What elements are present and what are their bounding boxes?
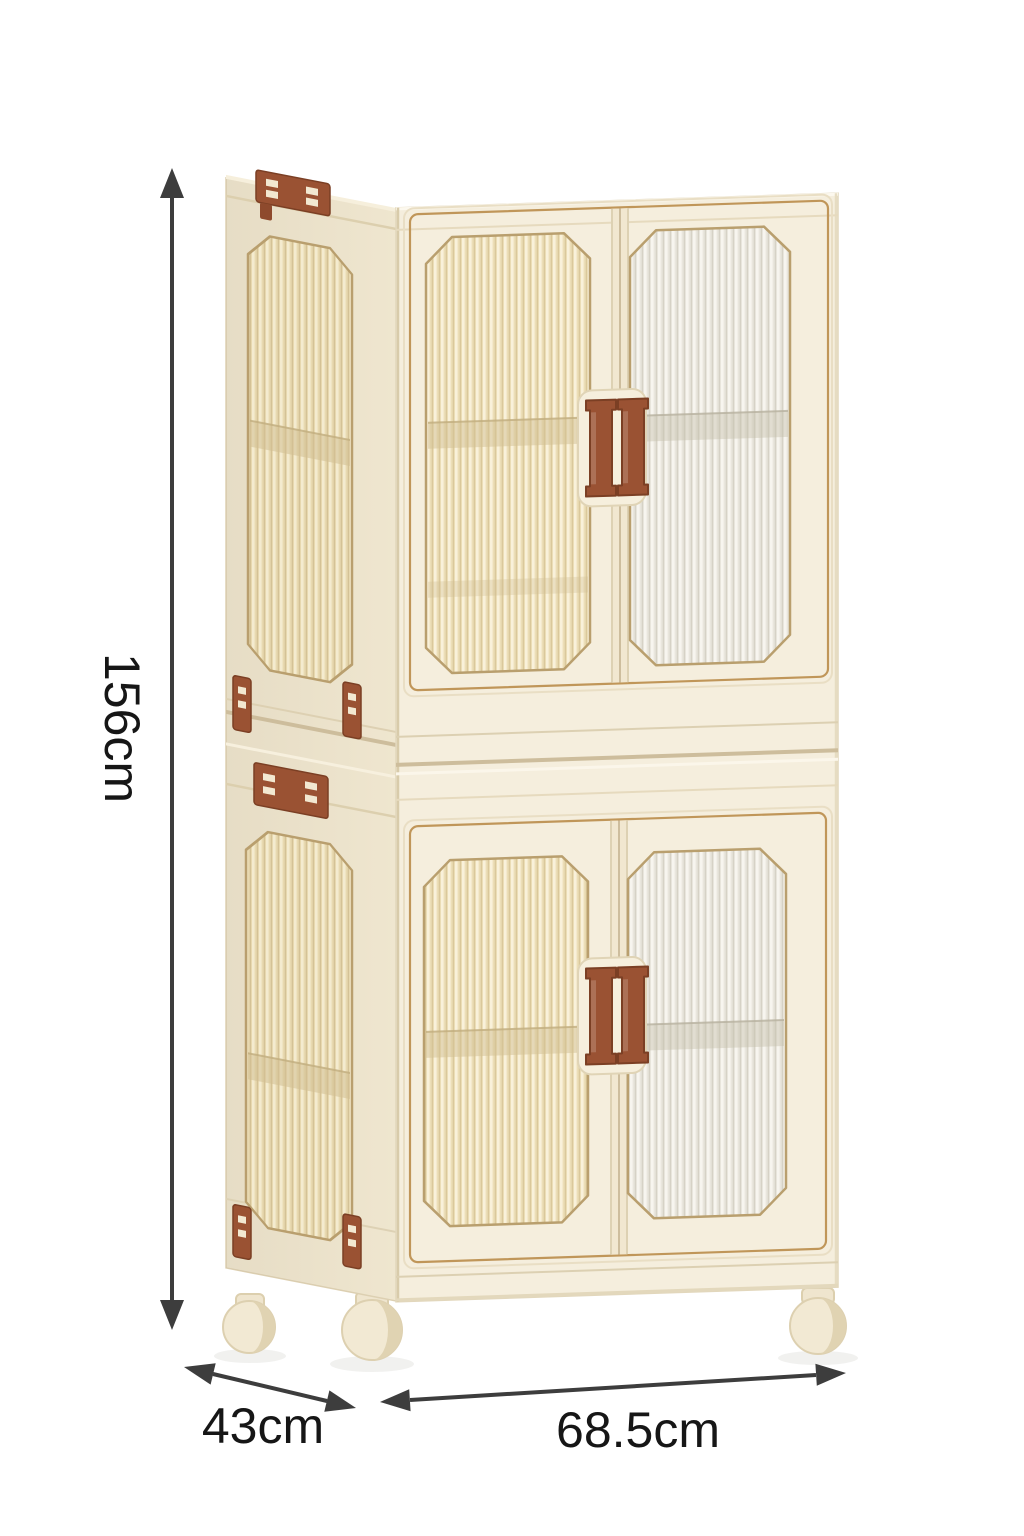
upper-right-door-window [630,226,790,666]
handle-bar-right [618,399,648,496]
arrow-down-icon [160,1300,184,1330]
width-dimension-label: 68.5cm [556,1405,720,1455]
cabinet-front-face [396,193,838,1302]
arrow-down-right-icon [324,1390,356,1411]
upper-door-handles [578,389,648,507]
mid-clip-left [233,675,251,732]
height-dimension-arrow [160,168,184,1330]
lower-left-door-window [424,855,588,1226]
lower-door-handles [578,957,648,1075]
cabinet-illustration [0,0,1024,1536]
arrow-left-icon [380,1389,411,1411]
depth-dimension-label: 43cm [202,1401,324,1451]
handle-bar-right [618,967,648,1064]
handle-bar-left [586,968,616,1065]
bottom-clip-left [233,1204,251,1259]
front-left-wheel [342,1292,402,1360]
arrow-up-icon [160,168,184,198]
ground-shadow [214,1349,858,1372]
back-left-wheel [223,1294,275,1353]
front-right-wheel [790,1288,846,1354]
arrow-up-left-icon [184,1363,216,1384]
height-dimension-label: 156cm [97,653,147,803]
arrow-right-icon [815,1364,846,1386]
lower-right-door-window [628,848,786,1219]
handle-bar-left [586,400,616,497]
side-window-lower [246,828,352,1245]
product-dimension-figure: 156cm 43cm 68.5cm [0,0,1024,1536]
cabinet-side-face [226,164,398,1301]
bottom-clip-right [343,1214,361,1269]
upper-left-door-window [426,232,590,673]
mid-clip-right [343,682,361,739]
side-window-upper [248,232,352,686]
